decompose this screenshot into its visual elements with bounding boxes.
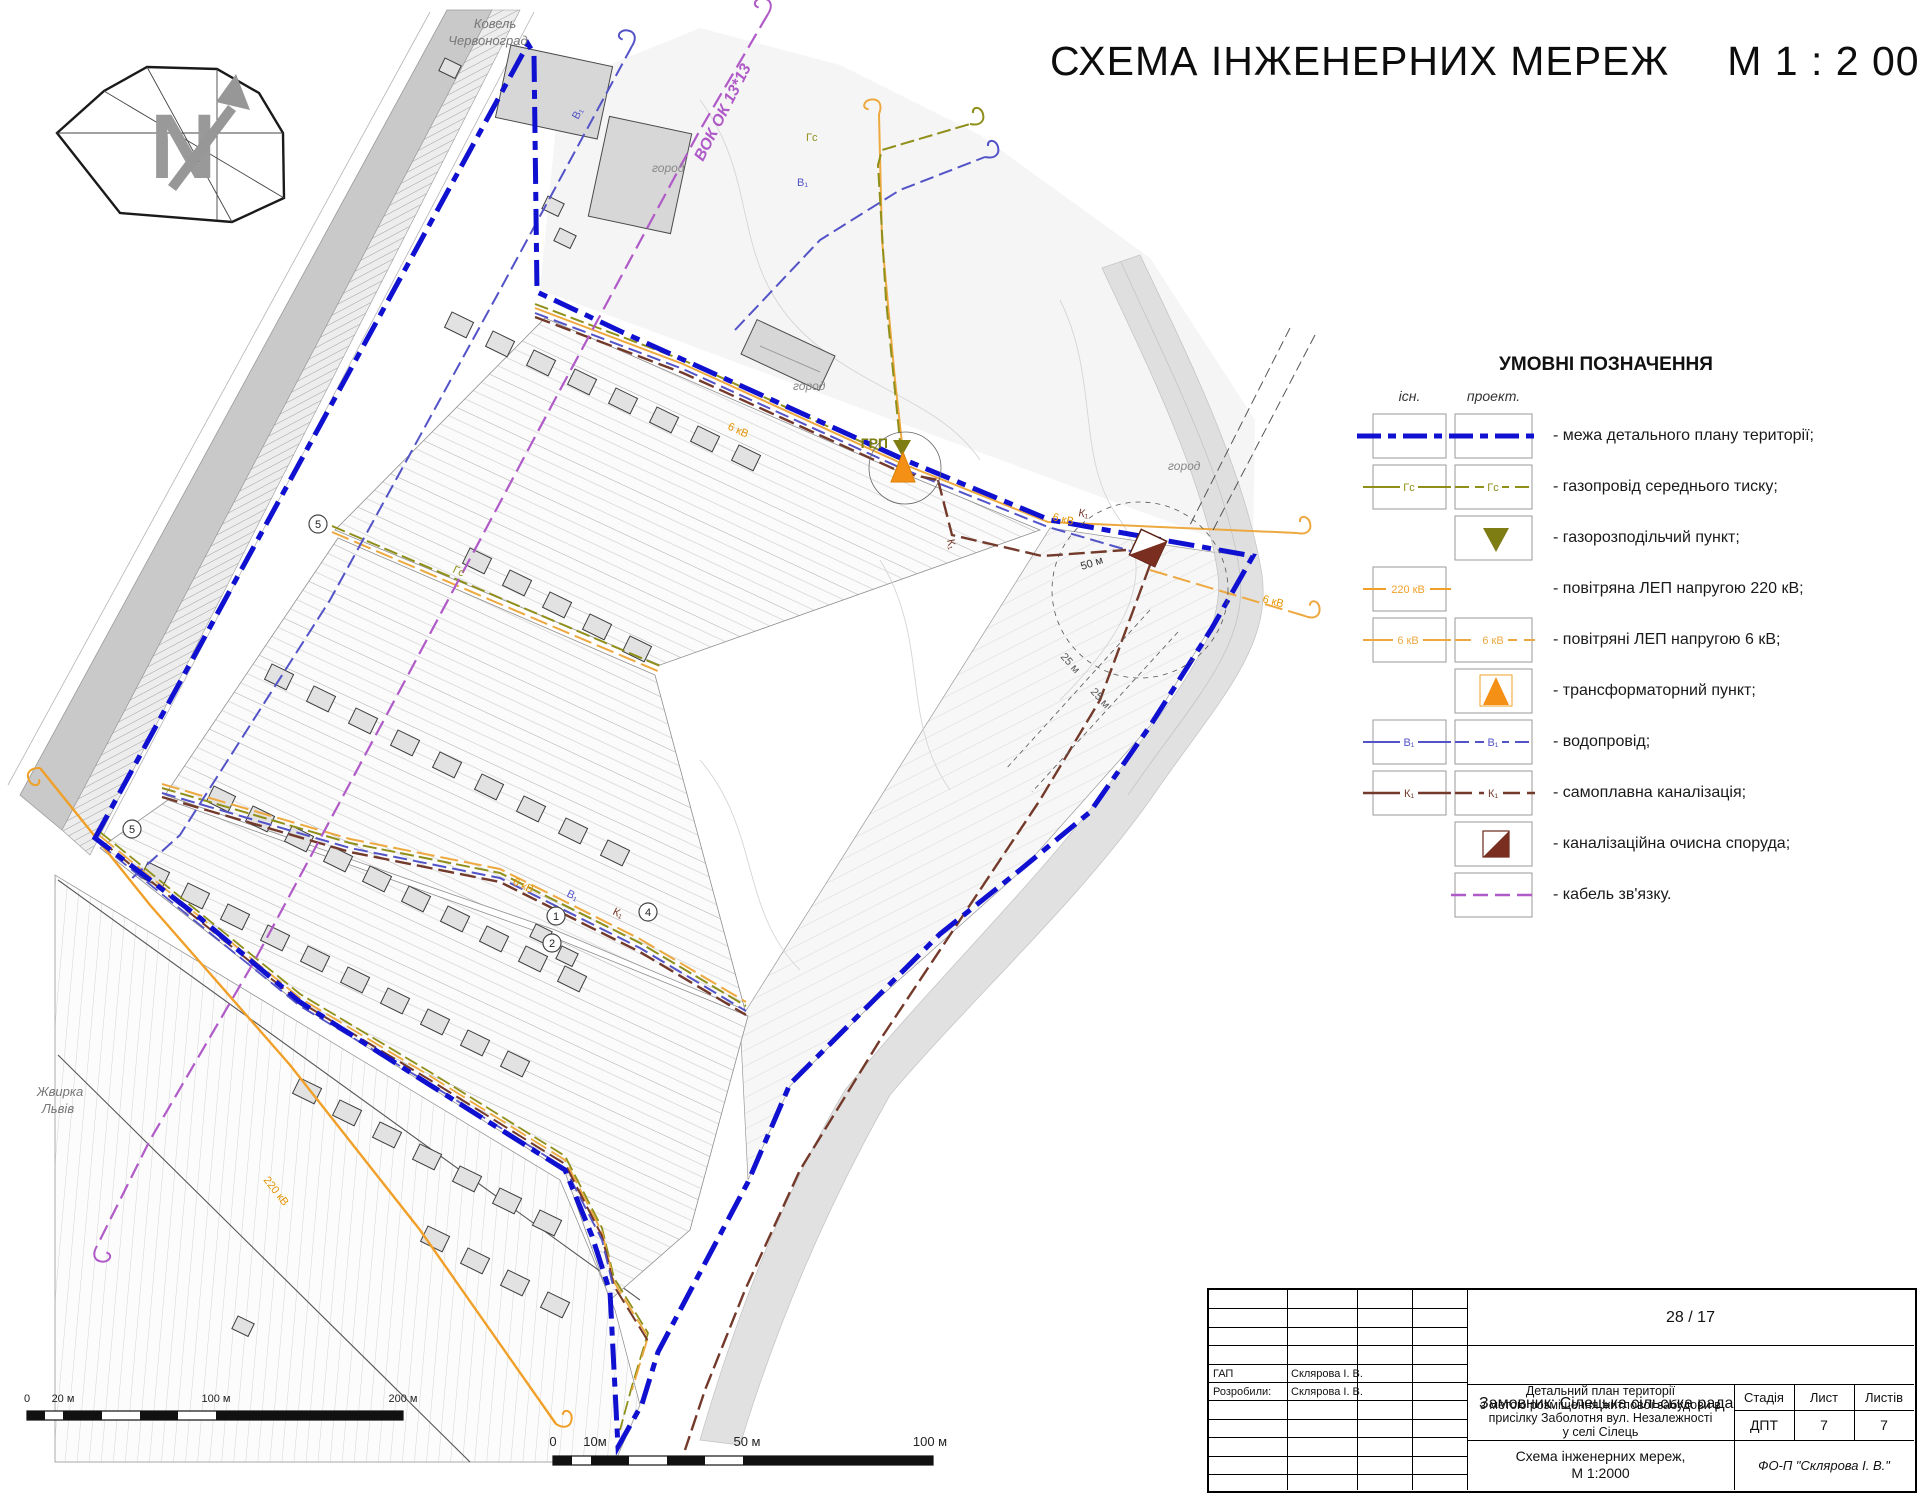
svg-text:Львів: Львів — [41, 1101, 74, 1116]
legend-item-cable: - кабель зв'язку. — [1355, 869, 1915, 921]
svg-text:6 кВ: 6 кВ — [1051, 511, 1075, 528]
svg-text:6 кВ: 6 кВ — [1397, 635, 1418, 647]
grp-legend-icon — [1483, 528, 1509, 552]
project-name: Детальний план території з метою розміще… — [1467, 1384, 1734, 1440]
drawing-sheet: N 5 5 1 2 4 Ковель Червоноград ВОК ОК 13… — [0, 0, 1920, 1496]
stage-value: ДПТ — [1734, 1410, 1794, 1440]
doc-title: Схема інженерних мереж, М 1:2000 — [1467, 1440, 1734, 1490]
doc-number: 28 / 17 — [1467, 1290, 1914, 1345]
sheet-label: Лист — [1794, 1384, 1854, 1410]
title-block: ГАП Склярова І. В. Розробили: Склярова І… — [1207, 1288, 1917, 1493]
legend-item-220kv: 220 кВ - повітряна ЛЕП напругою 220 кВ; — [1355, 563, 1915, 615]
svg-text:Червоноград: Червоноград — [448, 33, 527, 48]
svg-text:К₁: К₁ — [1488, 788, 1498, 800]
legend-item-6kv: 6 кВ 6 кВ - повітряні ЛЕП напругою 6 кВ; — [1355, 614, 1915, 666]
legend-col-projected: проект. — [1455, 388, 1532, 404]
north-arrow: N — [57, 67, 284, 222]
svg-text:К₁: К₁ — [1404, 788, 1414, 800]
role-gap-name: Склярова І. В. — [1291, 1368, 1363, 1380]
legend-item-sewer: К₁ К₁ - самоплавна каналізація; — [1355, 767, 1915, 819]
svg-text:100 м: 100 м — [202, 1393, 231, 1405]
svg-text:50 м: 50 м — [733, 1434, 760, 1449]
page-title: СХЕМА ІНЖЕНЕРНИХ МЕРЕЖМ 1 : 2 000 — [1050, 38, 1920, 85]
sheet-value: 7 — [1794, 1410, 1854, 1440]
svg-text:Гс: Гс — [1403, 482, 1415, 494]
svg-text:20 м: 20 м — [52, 1393, 75, 1405]
svg-text:100 м: 100 м — [913, 1434, 947, 1449]
svg-text:город: город — [1168, 459, 1201, 473]
svg-text:6 кВ: 6 кВ — [1261, 593, 1285, 610]
svg-text:город: город — [652, 161, 685, 175]
title-text: СХЕМА ІНЖЕНЕРНИХ МЕРЕЖ — [1050, 38, 1669, 84]
svg-text:город: город — [793, 379, 826, 393]
svg-text:220 кВ: 220 кВ — [1391, 584, 1425, 596]
svg-text:К₁: К₁ — [1077, 507, 1089, 521]
svg-text:10м: 10м — [583, 1434, 606, 1449]
svg-text:1: 1 — [553, 911, 559, 923]
svg-text:В₁: В₁ — [797, 177, 808, 189]
legend-item-boundary: - межа детального плану території; — [1355, 410, 1915, 462]
svg-text:5: 5 — [315, 519, 321, 531]
svg-text:В₁: В₁ — [1403, 737, 1414, 749]
role-gap-label: ГАП — [1213, 1368, 1233, 1380]
title-scale: М 1 : 2 000 — [1727, 38, 1920, 84]
svg-text:5: 5 — [129, 824, 135, 836]
svg-text:0: 0 — [549, 1434, 556, 1449]
sheets-label: Листів — [1854, 1384, 1914, 1410]
svg-text:2: 2 — [549, 938, 555, 950]
svg-text:4: 4 — [645, 907, 651, 919]
road-label-bottom: Жвирка — [36, 1084, 84, 1099]
north-arrowhead-icon — [216, 74, 250, 110]
svg-text:6 кВ: 6 кВ — [1482, 635, 1503, 647]
role-dev-label: Розробили: — [1213, 1386, 1271, 1398]
svg-text:В₁: В₁ — [1487, 737, 1498, 749]
sheets-value: 7 — [1854, 1410, 1914, 1440]
stage-label: Стадія — [1734, 1384, 1794, 1410]
legend-title: УМОВНІ ПОЗНАЧЕННЯ — [1400, 354, 1812, 376]
svg-text:200 м: 200 м — [389, 1393, 418, 1405]
grp-label: ГРП — [861, 435, 888, 451]
legend-col-existing: існ. — [1373, 388, 1446, 404]
legend-item-transformer: - трансформаторний пункт; — [1355, 665, 1915, 717]
svg-text:Гс: Гс — [806, 132, 818, 144]
road-label-top: Ковель — [474, 16, 517, 31]
firm: ФО-П "Склярова І. В." — [1734, 1440, 1914, 1490]
legend-item-gas: Гс Гс - газопровід середнього тиску; — [1355, 461, 1915, 513]
legend-item-treatment: - каналізаційна очисна споруда; — [1355, 818, 1915, 870]
svg-text:Гс: Гс — [1487, 482, 1499, 494]
svg-text:0: 0 — [24, 1393, 30, 1405]
role-dev-name: Склярова І. В. — [1291, 1386, 1363, 1398]
legend-item-grp: - газорозподільчий пункт; — [1355, 512, 1915, 564]
legend-item-water: В₁ В₁ - водопровід; — [1355, 716, 1915, 768]
